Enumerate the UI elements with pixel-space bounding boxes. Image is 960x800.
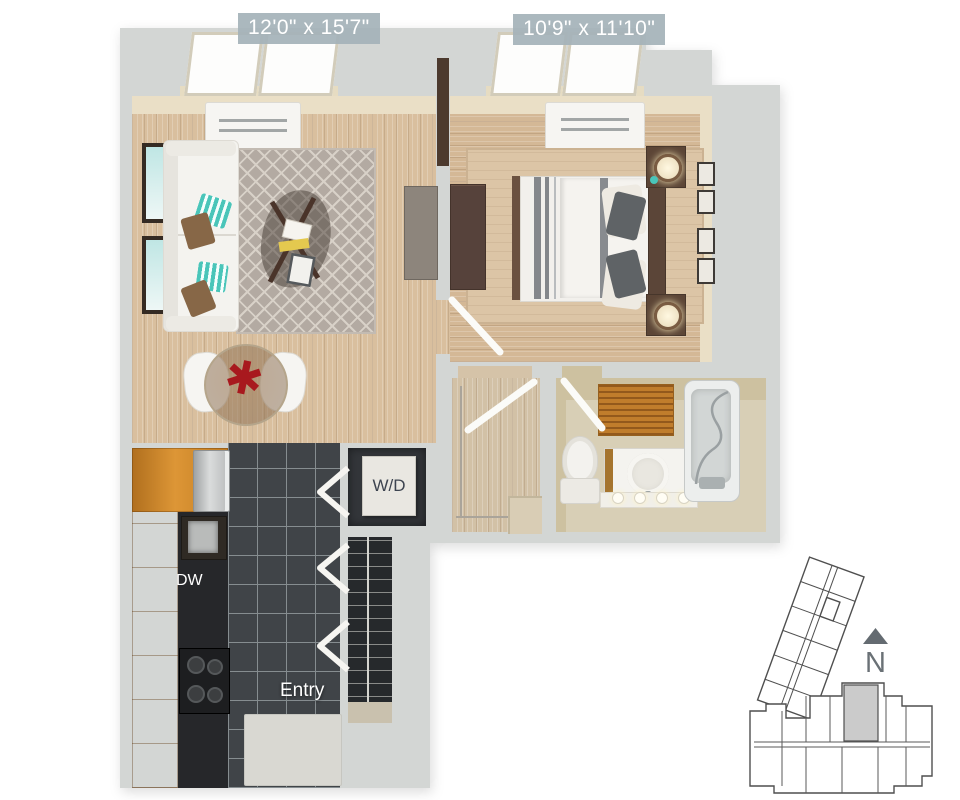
sink-bowl xyxy=(188,521,218,553)
dresser xyxy=(450,184,486,290)
wardrobe-strip xyxy=(437,58,449,166)
building-keyplan: N xyxy=(746,546,958,798)
bathtub xyxy=(684,380,740,502)
stove xyxy=(179,648,230,714)
toilet-tank xyxy=(560,478,600,504)
entry-closet-shelves xyxy=(348,537,392,723)
vanity-bulb xyxy=(656,492,668,504)
sofa-arm xyxy=(166,316,236,331)
table-lamp xyxy=(654,302,682,330)
keyplan-highlighted-unit xyxy=(844,685,878,741)
washer-dryer-unit: W/D xyxy=(362,456,416,516)
teal-cup xyxy=(650,176,658,184)
media-console xyxy=(404,186,438,280)
ac-vent-slats xyxy=(219,119,287,122)
floorplan-canvas: ✱ xyxy=(0,0,960,800)
bathtub-basin xyxy=(691,389,731,483)
north-label: N xyxy=(865,647,886,679)
vanity-bulb xyxy=(612,492,624,504)
sink-basin xyxy=(627,453,669,495)
washer-dryer-label: W/D xyxy=(372,476,405,496)
bed-stripe xyxy=(545,177,549,299)
ac-vent-slats xyxy=(561,118,629,121)
picture-frame xyxy=(697,228,715,254)
bedroom-ac-unit xyxy=(545,102,645,150)
bedroom-dimension-label: 10'9" x 11'10" xyxy=(513,14,665,45)
sofa-arm xyxy=(166,141,236,156)
living-room-dimension-label: 12'0" x 15'7" xyxy=(238,13,380,44)
dishwasher-label: DW xyxy=(176,572,203,590)
closet-doorway xyxy=(458,366,532,378)
closet-shelf-corner xyxy=(508,496,542,534)
picture-frame xyxy=(697,190,715,214)
sofa xyxy=(163,140,239,332)
bath-mat xyxy=(598,384,674,436)
tub-faucet xyxy=(699,477,725,489)
bed-stripe xyxy=(554,177,556,299)
bed-footboard xyxy=(512,176,520,300)
entry-mat xyxy=(244,714,342,786)
burner xyxy=(187,656,205,674)
burner xyxy=(207,659,223,675)
sofa-back xyxy=(164,141,178,331)
entry-closet-rod xyxy=(367,537,369,723)
toilet-bowl xyxy=(562,436,598,484)
entry-label: Entry xyxy=(280,680,324,702)
kitchen-sink xyxy=(181,516,227,560)
ac-vent-slats xyxy=(561,128,629,131)
picture-frame xyxy=(697,258,715,284)
burner xyxy=(187,685,205,703)
vanity-bulb xyxy=(634,492,646,504)
ac-vent-slats xyxy=(219,129,287,132)
bedroom-doorway xyxy=(436,300,450,354)
north-arrow-icon xyxy=(863,628,888,644)
refrigerator xyxy=(193,450,230,512)
burner xyxy=(207,687,223,703)
bed-stripe xyxy=(534,177,541,299)
table-lamp xyxy=(654,154,682,182)
entry-closet-floor xyxy=(348,702,392,723)
bathroom-doorway xyxy=(562,366,602,378)
bed-headboard xyxy=(648,170,666,308)
table-centerpiece: ✱ xyxy=(213,347,275,409)
closet-rod xyxy=(460,386,462,518)
picture-frame xyxy=(697,162,715,186)
